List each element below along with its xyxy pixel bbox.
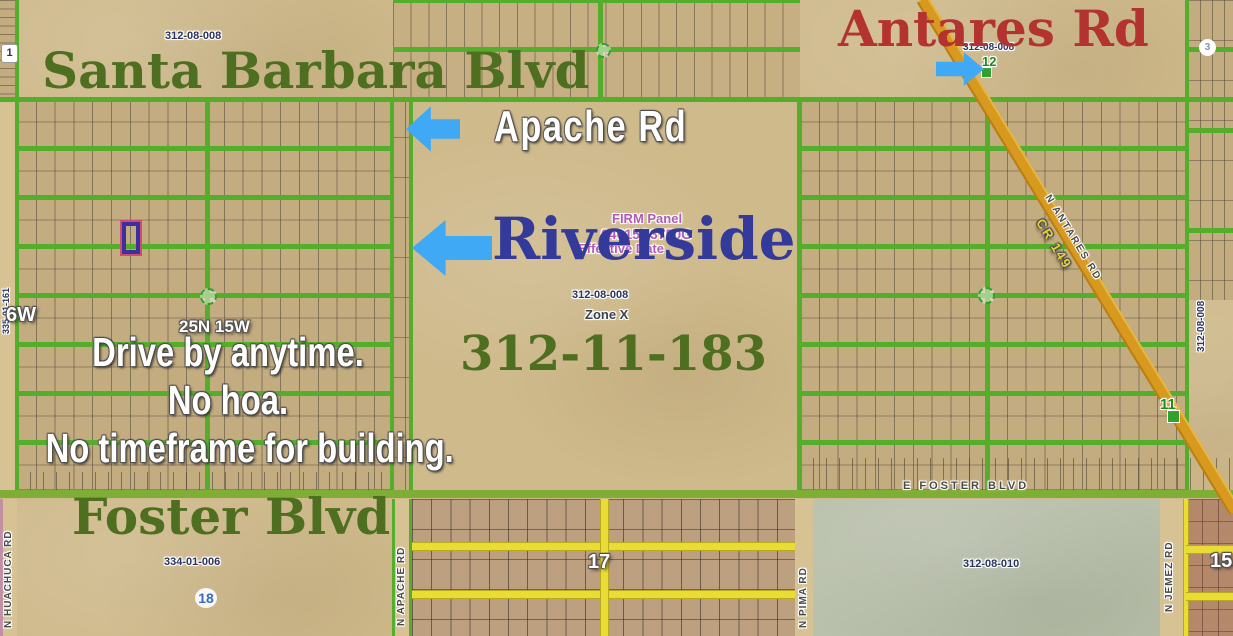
riverside-arrow-icon [412, 220, 492, 276]
marketing-line-3: No timeframe for building. [46, 424, 411, 472]
road-jemez-edge [1183, 499, 1189, 636]
section-corner-marker-2 [596, 43, 611, 58]
road-left-strip-edge [15, 0, 19, 497]
section-corner-marker-1 [200, 288, 217, 305]
apn-right-strip-text: 312-08-008 [1196, 301, 1207, 352]
jemez-road-label: N JEMEZ RD [1164, 541, 1175, 612]
section-11-label: 11 [1160, 396, 1176, 413]
n-huachuca-text: N HUACHUCA RD [3, 530, 14, 628]
subject-apn-title: 312-11-183 [460, 330, 767, 378]
subject-parcel-marker [122, 222, 140, 254]
n-pima-text: N PIMA RD [798, 567, 809, 628]
section-3-text: 3 [1205, 42, 1211, 53]
section-1-badge: 1 [1, 44, 18, 63]
section-18-text: 18 [198, 590, 214, 606]
huachuca-road-label: N HUACHUCA RD [3, 530, 14, 628]
antares-arrow-icon [936, 52, 984, 86]
section-corner-marker-3 [978, 287, 995, 304]
apn-label-bottom-left: 334-01-006 [164, 556, 220, 568]
road-yellow-right-h2 [1186, 592, 1233, 601]
santa-barbara-blvd-title: Santa Barbara Blvd [42, 46, 590, 96]
section-3-badge: 3 [1199, 39, 1216, 56]
section-1-text: 1 [6, 47, 12, 59]
road-top-edge [393, 0, 800, 3]
road-right-strip-h3 [1188, 228, 1233, 233]
antares-rd-title: Antares Rd [838, 4, 1149, 54]
foster-blvd-title: Foster Blvd [72, 492, 390, 542]
road-right-block-w [797, 97, 802, 497]
apache-road-label: N APACHE RD [396, 547, 407, 626]
road-right-strip-h2 [1188, 128, 1233, 133]
marketing-line-1: Drive by anytime. [46, 328, 411, 376]
apache-arrow-icon [406, 106, 460, 152]
plat-map: N ANTARES RD CR 149 1 3 12 11 17 15 18 3… [0, 0, 1233, 636]
n-jemez-text: N JEMEZ RD [1164, 541, 1175, 612]
section-17-label: 17 [588, 551, 610, 574]
pima-road-label: N PIMA RD [798, 567, 809, 628]
riverside-title: Riverside [492, 210, 796, 268]
e-foster-text: E FOSTER BLVD [903, 480, 1029, 492]
range-partial-label: 6W [6, 304, 36, 327]
apn-label-bottom-right: 312-08-010 [963, 558, 1019, 570]
section-15-label: 15 [1210, 550, 1232, 573]
marketing-line-2: No hoa. [46, 376, 411, 424]
apn-label-center: 312-08-008 [572, 289, 628, 301]
zone-x-label: Zone X [585, 307, 628, 322]
n-apache-text: N APACHE RD [396, 547, 407, 626]
marketing-text-block: Drive by anytime. No hoa. No timeframe f… [46, 328, 411, 472]
road-apache-strip-e [409, 499, 412, 636]
section-18-badge: 18 [195, 588, 217, 608]
apache-rd-title: Apache Rd [494, 105, 687, 149]
road-apache-strip-w [392, 499, 395, 636]
e-foster-blvd-label: E FOSTER BLVD [903, 480, 1029, 492]
apn-right-strip-vertical: 312-08-008 [1196, 301, 1207, 352]
